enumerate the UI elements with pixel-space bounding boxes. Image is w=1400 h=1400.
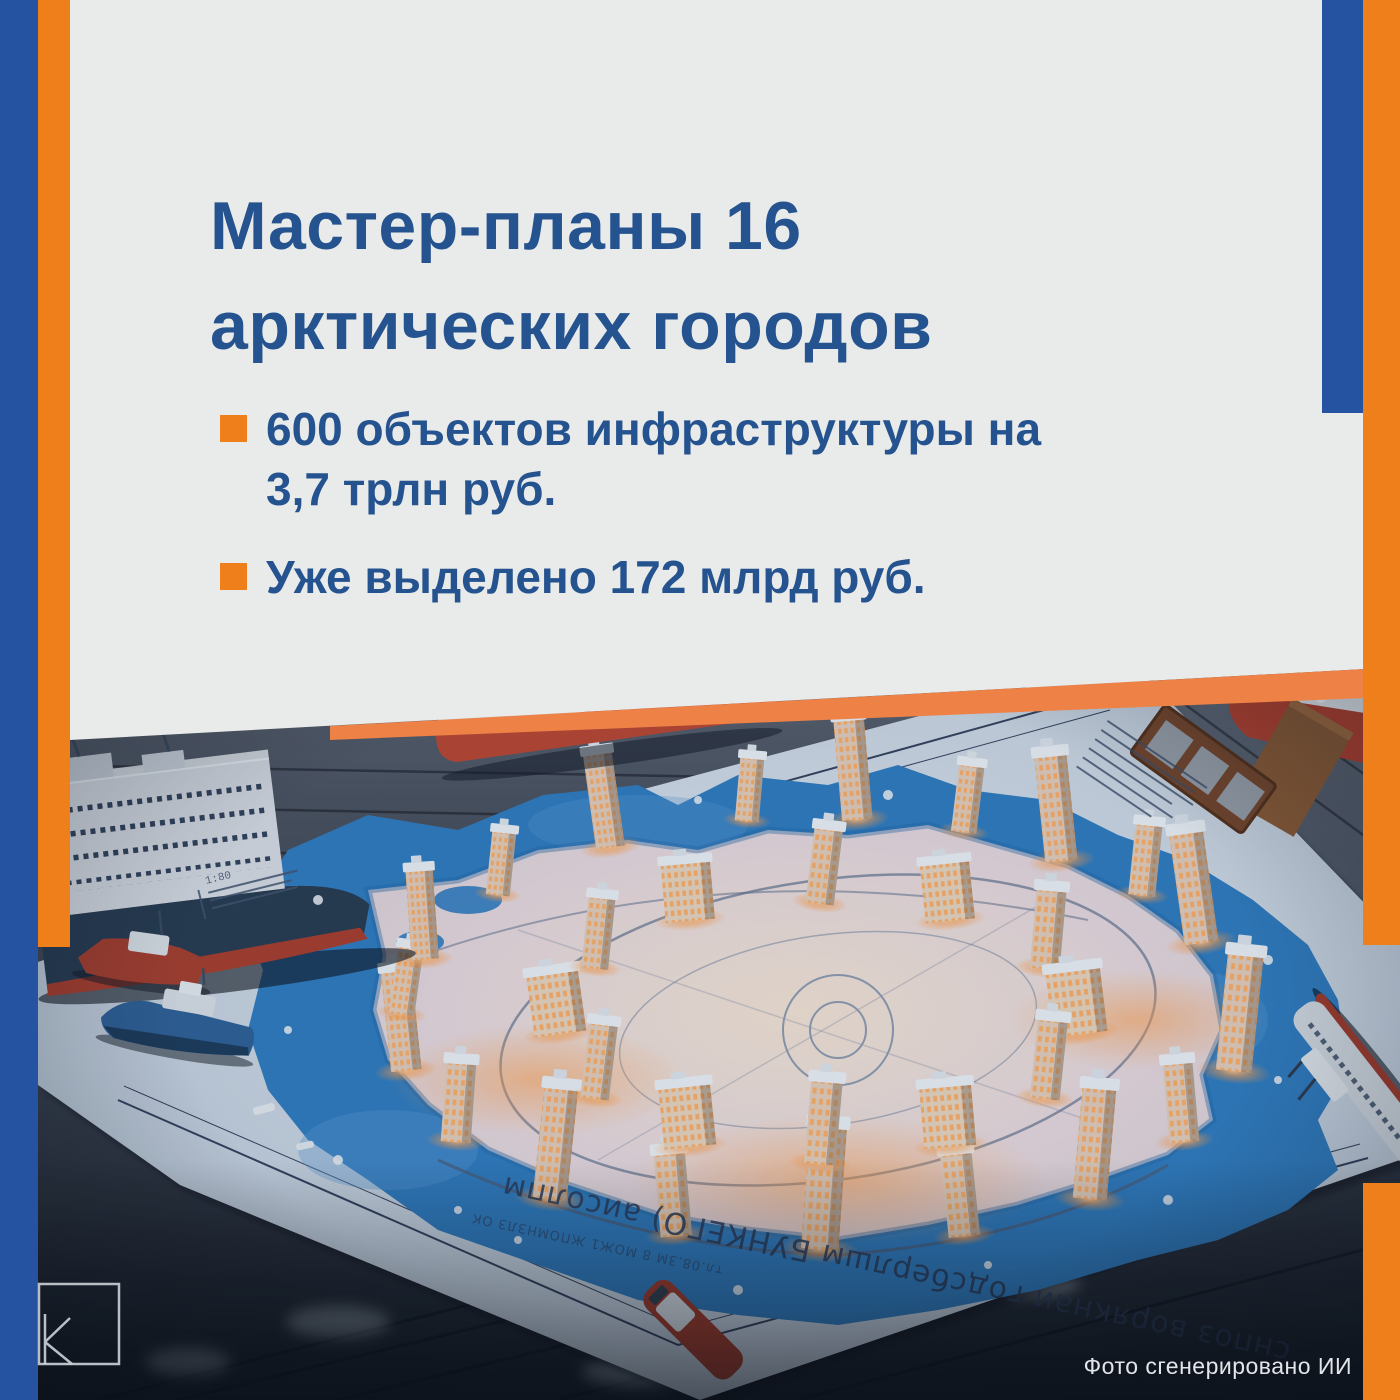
page-title: Мастер-планы 16 арктических городов [210, 176, 932, 376]
bullet-square-icon [220, 415, 247, 442]
title-line-2: арктических городов [210, 276, 932, 376]
content-card: Мастер-планы 16 арктических городов 600 … [70, 0, 1365, 740]
bullet-1-line-1: 600 объектов инфраструктуры на [266, 399, 1041, 459]
bullet-2-line-1: Уже выделено 172 млрд руб. [266, 547, 1041, 607]
bullet-1-line-2: 3,7 трлн руб. [266, 459, 1041, 519]
bullet-item-allocated: Уже выделено 172 млрд руб. [220, 547, 1041, 607]
poster-canvas: 1:80 снпоз ворякнаи годсберлшм БУНКЕГО) … [0, 0, 1400, 1400]
blue-bar-left [0, 0, 38, 1400]
title-line-1: Мастер-планы 16 [210, 176, 932, 276]
logo-frame [39, 1284, 119, 1364]
bullet-list: 600 объектов инфраструктуры на 3,7 трлн … [220, 399, 1041, 635]
orange-bar-right-bottom [1363, 1183, 1400, 1400]
bullet-square-icon [220, 563, 247, 590]
logo-k-glyph [45, 1314, 72, 1364]
orange-bar-left [38, 0, 70, 947]
blue-block-right [1322, 0, 1363, 413]
brand-logo [36, 1278, 128, 1370]
orange-bar-right-top [1363, 0, 1400, 945]
bullet-item-infrastructure: 600 объектов инфраструктуры на 3,7 трлн … [220, 399, 1041, 519]
ai-watermark: Фото сгенерировано ИИ [1084, 1353, 1352, 1379]
